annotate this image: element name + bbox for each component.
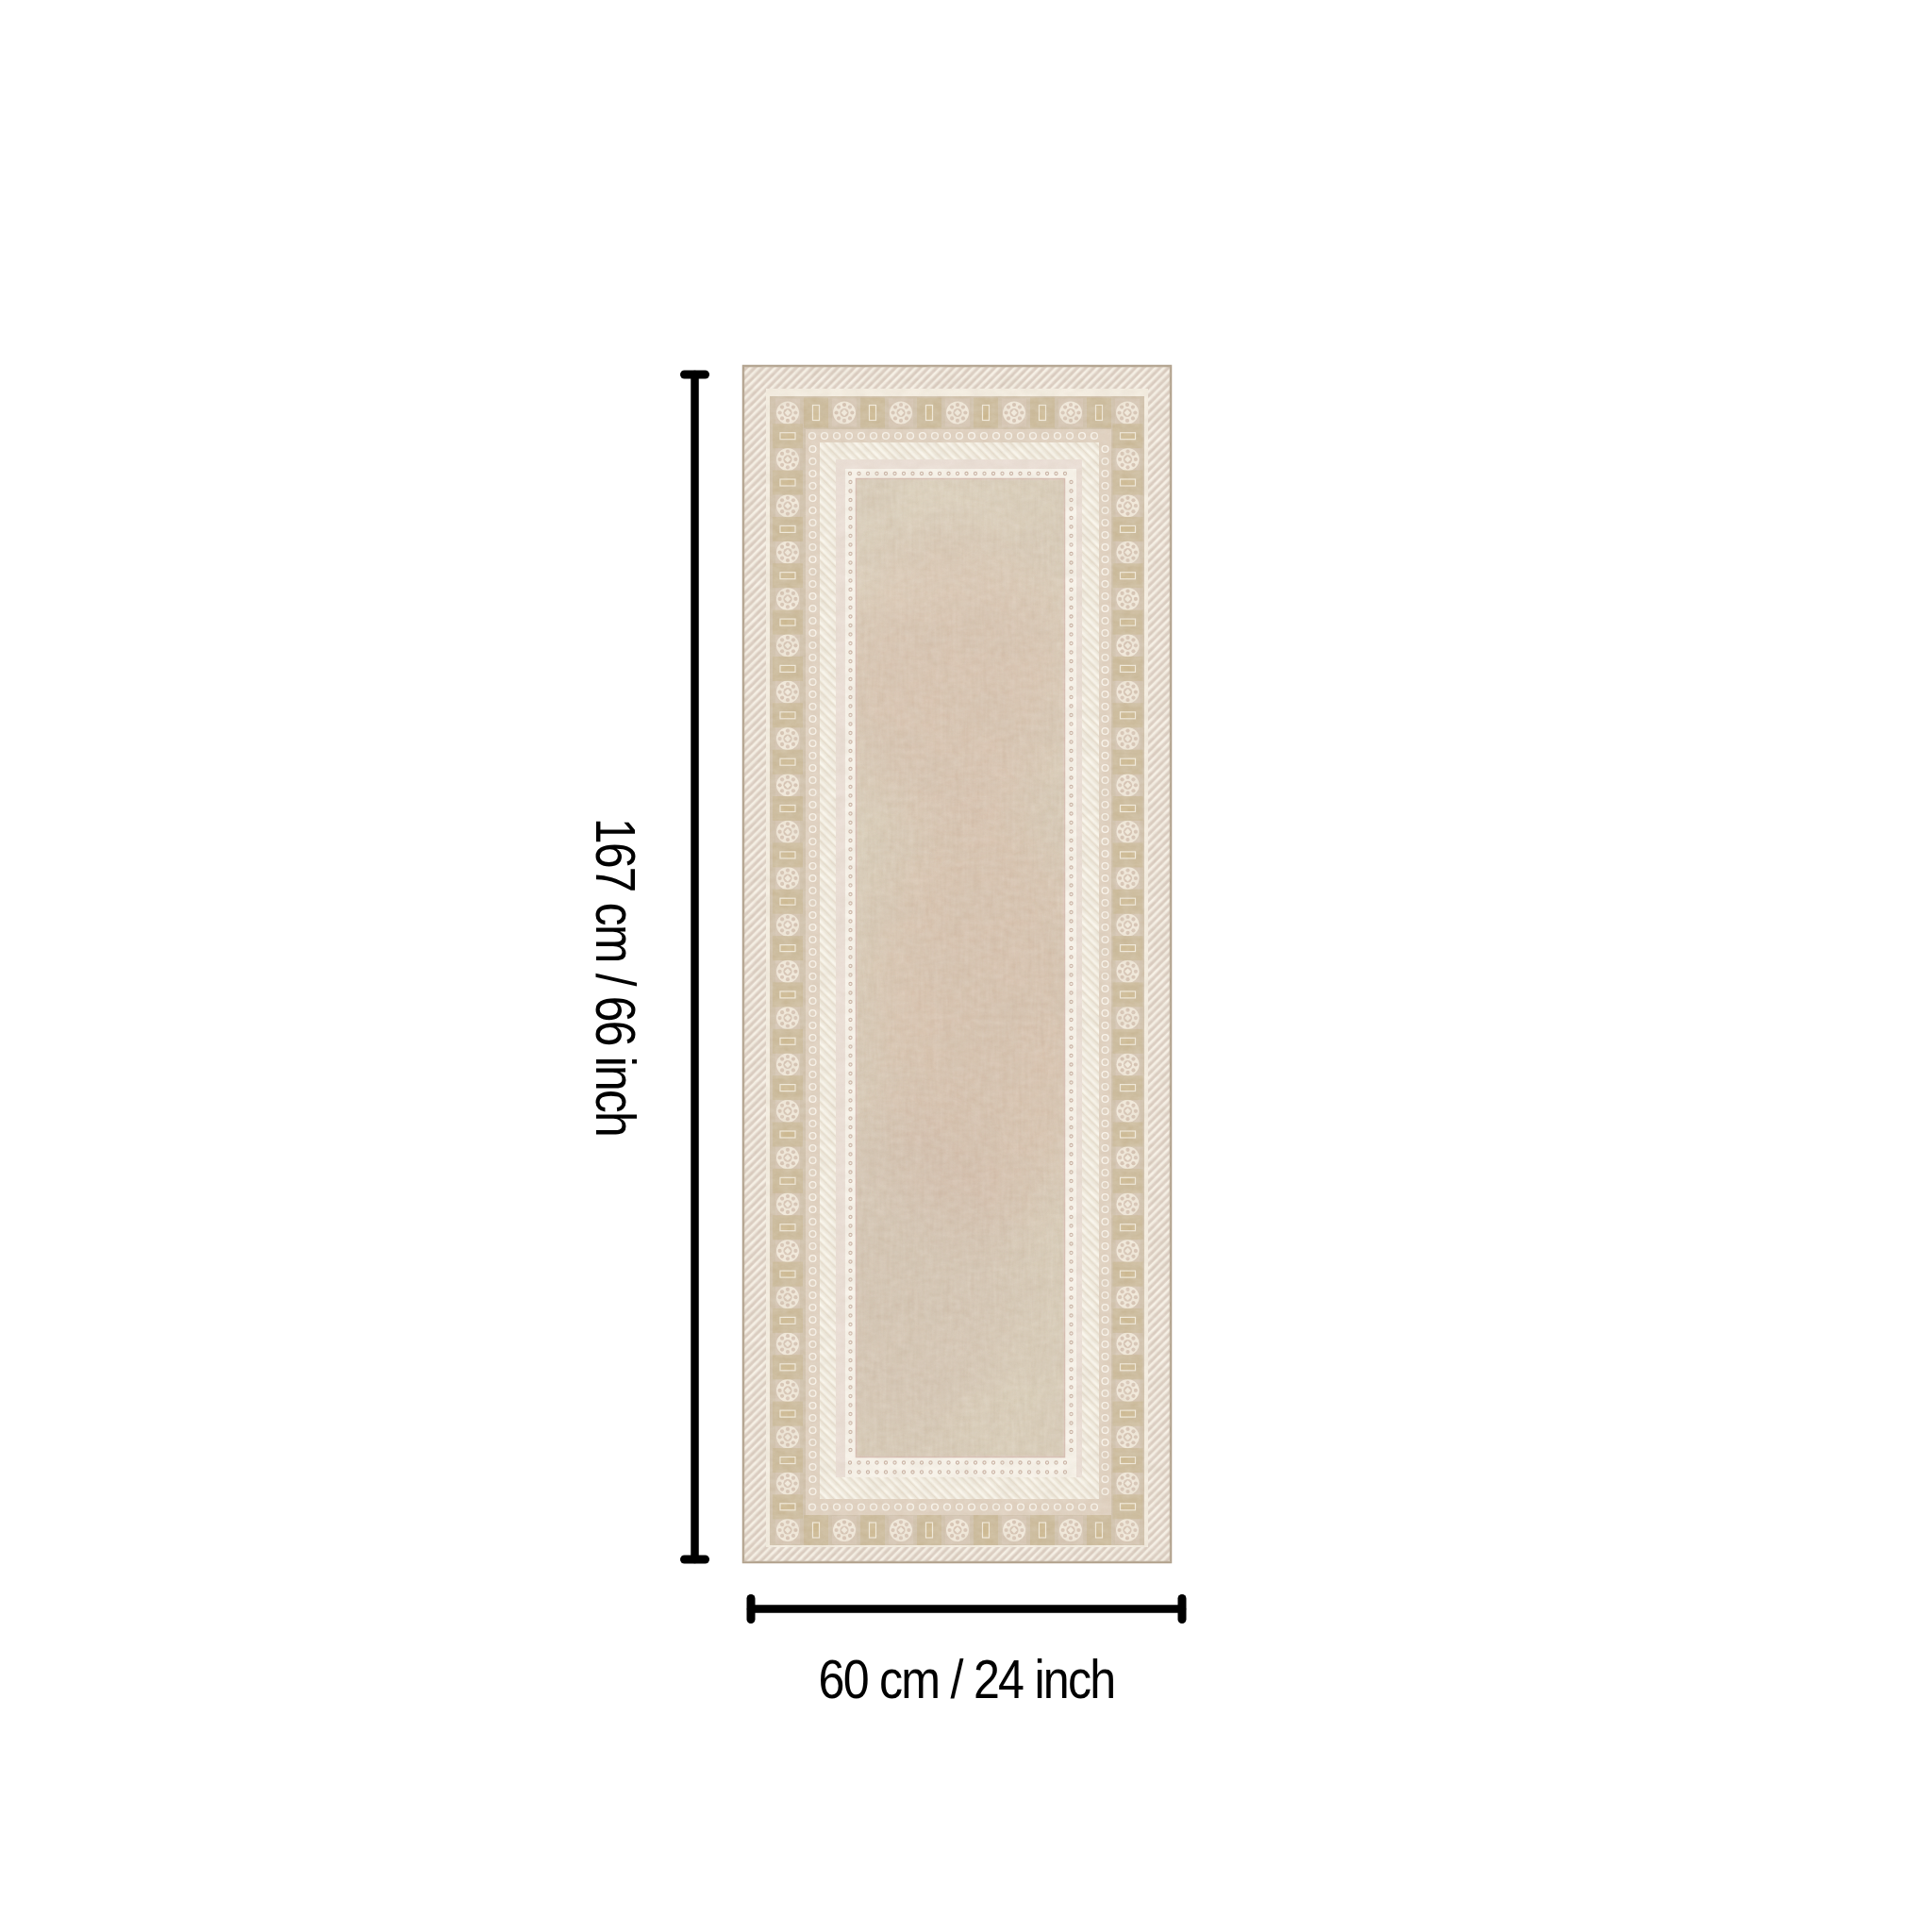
svg-text:60 cm / 24 inch: 60 cm / 24 inch: [819, 1649, 1115, 1709]
svg-text:167 cm / 66 inch: 167 cm / 66 inch: [585, 818, 646, 1136]
